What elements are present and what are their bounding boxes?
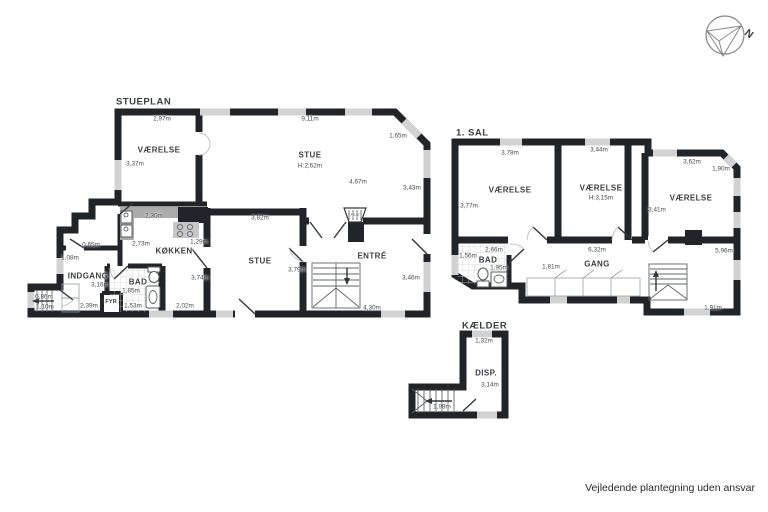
gang-wardrobe bbox=[527, 270, 640, 296]
room-label: VÆRELSE bbox=[580, 184, 623, 193]
dimension-label: 1,85m bbox=[122, 288, 140, 295]
dimension-label: 3,44m bbox=[590, 147, 608, 154]
dimension-label: 2,97m bbox=[153, 116, 171, 123]
toilet-icon bbox=[478, 268, 488, 280]
dimension-label: 5,96m bbox=[715, 248, 733, 255]
dimension-label: 3,77m bbox=[460, 203, 478, 210]
dimension-label: 6,32m bbox=[588, 247, 606, 254]
dimension-label: 1,29m bbox=[190, 239, 208, 246]
dimension-label: 1,98m bbox=[433, 404, 451, 411]
room-label: INDGANG bbox=[68, 272, 109, 281]
bathtub-icon bbox=[146, 286, 160, 308]
room-label: ENTRÉ bbox=[357, 252, 386, 261]
dimension-label: 3,46m bbox=[402, 275, 420, 282]
dimension-label: 3,16m bbox=[91, 282, 109, 289]
floor-heading-stueplan: STUEPLAN bbox=[116, 97, 171, 108]
floor-heading-1-sal: 1. SAL bbox=[456, 128, 489, 139]
dimension-label: 0,86m bbox=[35, 294, 53, 301]
dimension-label: 1,53m bbox=[124, 303, 142, 310]
dimension-label: 3,62m bbox=[683, 159, 701, 166]
dimension-label: 1,65m bbox=[389, 133, 407, 140]
dimension-label: H:3,15m bbox=[589, 195, 613, 202]
dimension-label: 3,78m bbox=[501, 150, 519, 157]
dimension-label: 0,65m bbox=[82, 242, 100, 249]
room-label: BAD bbox=[129, 278, 148, 287]
dimension-label: 2,73m bbox=[132, 241, 150, 248]
dimension-label: 3,74m bbox=[191, 275, 209, 282]
room-label: VÆRELSE bbox=[670, 194, 713, 203]
dimension-label: 1,08m bbox=[61, 255, 79, 262]
room-label: KØKKEN bbox=[155, 247, 192, 256]
room-label: DISP. bbox=[475, 369, 497, 378]
toilet-icon bbox=[149, 272, 159, 283]
first-floor-staircase bbox=[649, 264, 687, 300]
dimension-label: 2,66m bbox=[485, 247, 503, 254]
dimension-label: 2,39m bbox=[80, 303, 98, 310]
dimension-label: H:2,62m bbox=[298, 163, 322, 170]
dimension-label: 3,41m bbox=[648, 207, 666, 214]
dimension-label: 1,81m bbox=[542, 264, 560, 271]
room-label: BAD bbox=[479, 256, 498, 265]
dimension-label: 2,02m bbox=[176, 303, 194, 310]
small-room-label: FYR bbox=[105, 299, 117, 305]
north-compass-icon: N bbox=[706, 16, 756, 56]
room-label: VÆRELSE bbox=[138, 146, 181, 155]
dimension-label: 1,91m bbox=[704, 305, 722, 312]
disclaimer-text: Vejledende plantegning uden ansvar bbox=[585, 482, 755, 494]
room-label: VÆRELSE bbox=[489, 186, 532, 195]
room-label: STUE bbox=[299, 151, 322, 160]
dimension-label: 1,90m bbox=[712, 166, 730, 173]
floor-heading-kaelder: KÆLDER bbox=[462, 321, 507, 332]
room-label: STUE bbox=[249, 257, 272, 266]
dimension-label: 3,14m bbox=[481, 382, 499, 389]
dimension-label: 3,79m bbox=[288, 267, 306, 274]
floorplan-page: N STUEPLANVÆRELSESTUEKØKKENSTUEENTRÉINDG… bbox=[0, 0, 768, 512]
first-floor-plan bbox=[455, 142, 737, 312]
dimension-label: 9,11m bbox=[301, 116, 318, 123]
dimension-label: 4,30m bbox=[363, 305, 381, 312]
dimension-label: 4,67m bbox=[349, 179, 367, 186]
dimension-label: 3,43m bbox=[403, 185, 421, 192]
tiny-label: PEJS bbox=[351, 213, 360, 217]
dimension-label: 1,95m bbox=[490, 265, 508, 272]
dimension-label: 1,32m bbox=[475, 338, 493, 345]
room-label: GANG bbox=[584, 260, 610, 269]
dimension-label: 3,82m bbox=[251, 215, 269, 222]
entre-staircase bbox=[312, 263, 360, 308]
dimension-label: 3,37m bbox=[126, 161, 144, 168]
dimension-label: 2,30m bbox=[145, 213, 163, 220]
dimension-label: 1,10m bbox=[36, 304, 54, 311]
sink-icon bbox=[491, 272, 507, 287]
dimension-label: 1,56m bbox=[459, 253, 477, 260]
